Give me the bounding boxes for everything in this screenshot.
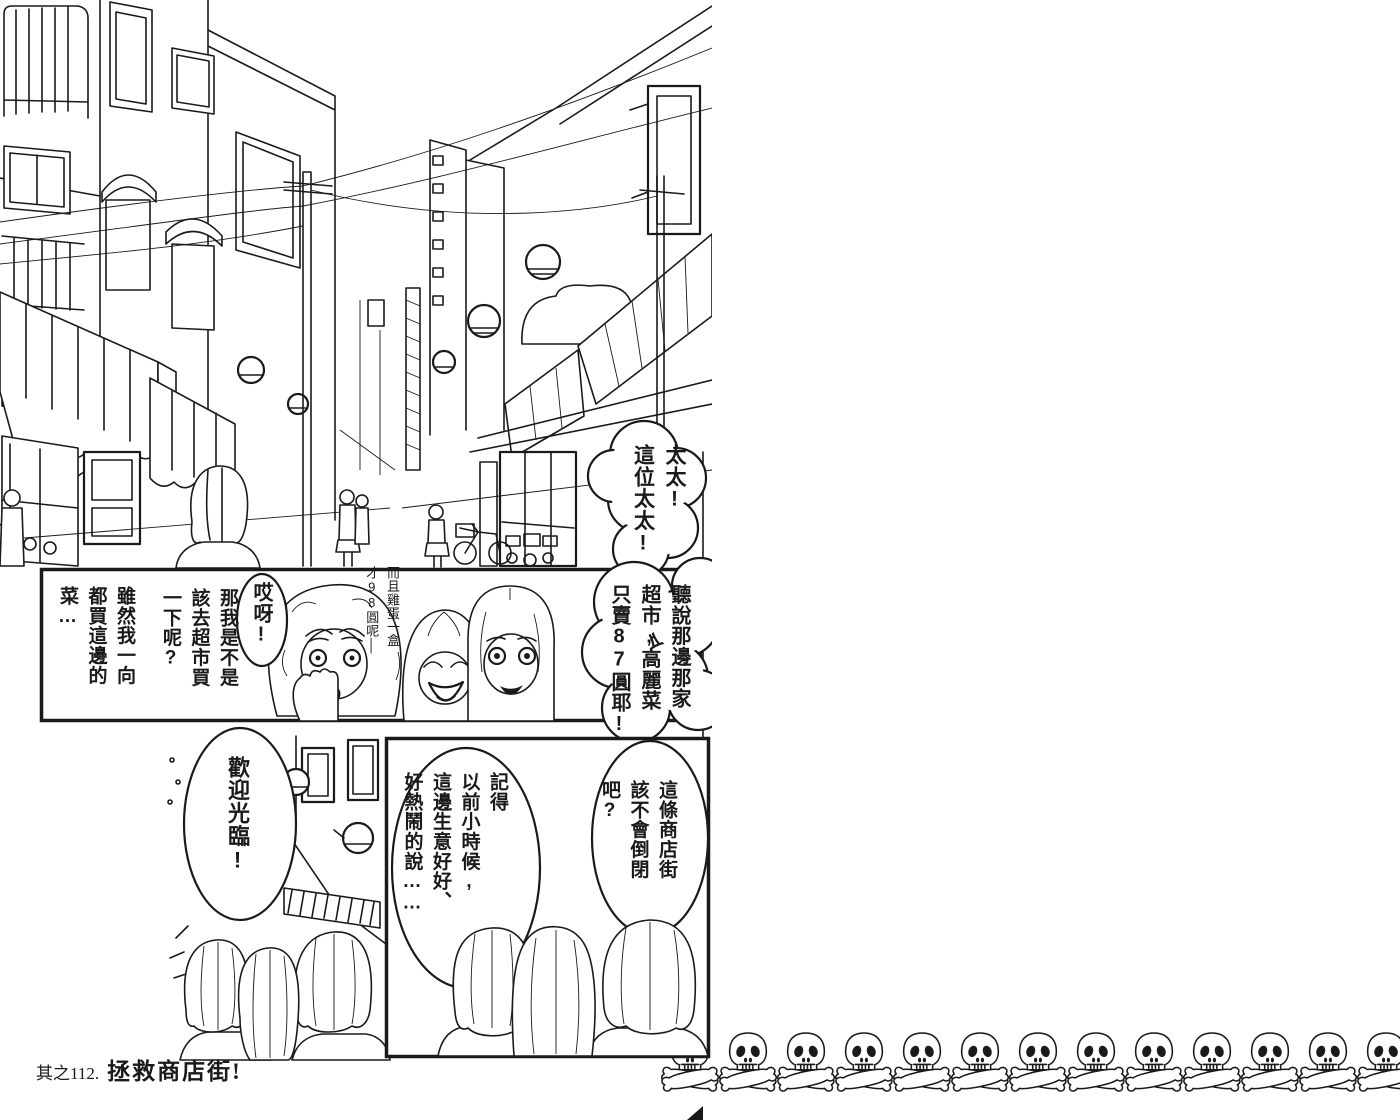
bubble-text-remember: 記得 以前小時候, 這邊生意好好、 好熱鬧的說…… <box>397 772 511 980</box>
skull-and-crossbones-icon <box>893 1030 951 1094</box>
manga-artwork <box>0 0 712 1120</box>
skull-and-crossbones-icon <box>1125 1030 1183 1094</box>
skull-and-crossbones-icon <box>1241 1030 1299 1094</box>
skull-border <box>661 1030 1400 1096</box>
page-corner-mark <box>687 1106 703 1120</box>
chapter-title: 拯救商店街! <box>107 1052 242 1086</box>
skull-and-crossbones-icon <box>1067 1030 1125 1094</box>
manga-page: 太太! 這位太太! 聽說那邊那家 超市,高麗菜 只賣87圓耶! 雖然我一向 都買… <box>0 0 1400 1120</box>
women-backs-left <box>180 932 390 1060</box>
skull-and-crossbones-icon <box>1009 1030 1067 1094</box>
bubble-text-should-i-go: 那我是不是 該去超市買 一下呢? <box>156 588 242 712</box>
skull-and-crossbones-icon <box>951 1030 1009 1094</box>
bubble-text-street-worry: 這條商店街 該不會倒閉 吧? <box>595 780 681 920</box>
bubble-text-call-out: 太太! 這位太太! <box>627 444 690 604</box>
bubble-text-welcome: 歡迎光臨! <box>221 756 254 898</box>
sparkle-marks <box>170 926 188 978</box>
street-lamps <box>238 245 560 414</box>
chapter-number: 其之112. <box>36 1059 99 1084</box>
woman-talking <box>468 586 554 721</box>
bubble-text-oh-my: 哎呀! <box>246 582 276 676</box>
chapter-caption: 其之112. 拯救商店街! <box>36 1052 242 1086</box>
bubble-text-news: 聽說那邊那家 超市,高麗菜 只賣87圓耶! <box>604 584 694 740</box>
skull-and-crossbones-icon <box>1357 1030 1400 1094</box>
bubble-text-although: 雖然我一向 都買這邊的 菜… <box>53 586 139 716</box>
skull-and-crossbones-icon <box>719 1030 777 1094</box>
skull-and-crossbones-icon <box>777 1030 835 1094</box>
skull-and-crossbones-icon <box>1183 1030 1241 1094</box>
note-text-egg-price: 而且雞蛋一盒 才98圓呢│ <box>360 566 402 706</box>
skull-and-crossbones-icon <box>1299 1030 1357 1094</box>
skull-and-crossbones-icon <box>835 1030 893 1094</box>
